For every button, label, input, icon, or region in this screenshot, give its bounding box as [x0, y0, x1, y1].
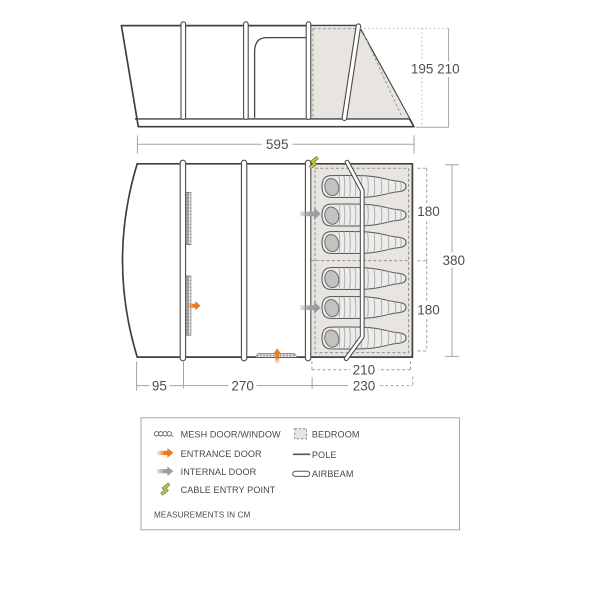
svg-text:210: 210 [437, 62, 460, 77]
svg-text:95: 95 [152, 378, 167, 393]
svg-text:ENTRANCE DOOR: ENTRANCE DOOR [181, 449, 262, 459]
svg-text:270: 270 [231, 378, 254, 393]
svg-text:180: 180 [417, 303, 440, 318]
svg-text:380: 380 [443, 253, 466, 268]
svg-text:195: 195 [411, 62, 434, 77]
svg-text:210: 210 [353, 363, 376, 378]
svg-text:POLE: POLE [312, 450, 337, 460]
svg-text:CABLE ENTRY POINT: CABLE ENTRY POINT [181, 485, 276, 495]
svg-text:MEASUREMENTS IN CM: MEASUREMENTS IN CM [154, 511, 250, 520]
svg-text:BEDROOM: BEDROOM [312, 430, 360, 440]
svg-text:230: 230 [353, 378, 376, 393]
svg-text:595: 595 [266, 137, 289, 152]
svg-text:MESH DOOR/WINDOW: MESH DOOR/WINDOW [181, 430, 281, 440]
svg-text:180: 180 [417, 204, 440, 219]
svg-text:AIRBEAM: AIRBEAM [312, 469, 354, 479]
svg-text:INTERNAL DOOR: INTERNAL DOOR [181, 467, 257, 477]
